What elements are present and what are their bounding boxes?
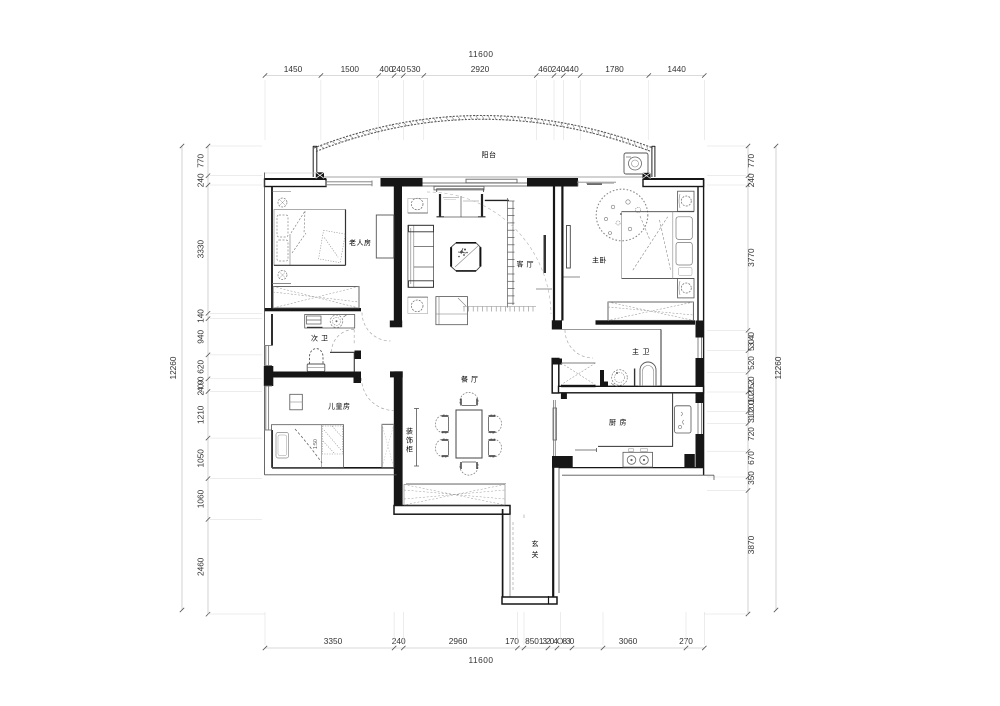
svg-text:850: 850 [525,636,539,646]
svg-text:460: 460 [538,64,552,74]
svg-text:720: 720 [746,427,756,441]
svg-text:1780: 1780 [605,64,624,74]
svg-text:12260: 12260 [773,356,783,379]
svg-text:240: 240 [552,64,566,74]
svg-text:13204O830: 13204O830 [539,636,575,646]
svg-text:柜: 柜 [406,445,414,454]
svg-text:1500: 1500 [341,64,360,74]
svg-text:670: 670 [746,451,756,465]
svg-text:24090: 24090 [196,376,206,395]
svg-text:餐厅: 餐厅 [461,375,481,384]
svg-text:2460: 2460 [196,557,206,576]
svg-text:350: 350 [746,471,756,485]
svg-text:620: 620 [196,359,206,373]
svg-text:1060: 1060 [196,489,206,508]
svg-text:1210: 1210 [196,405,206,424]
svg-text:3330: 3330 [196,239,206,258]
svg-text:1050: 1050 [196,449,206,468]
svg-text:关: 关 [532,550,540,559]
svg-text:主卫: 主卫 [632,347,653,356]
svg-text:240: 240 [746,173,756,187]
svg-text:厨房: 厨房 [609,418,630,427]
svg-text:53040: 53040 [746,332,756,351]
svg-text:阳台: 阳台 [482,150,497,159]
svg-text:儿童房: 儿童房 [328,402,351,411]
svg-text:310200: 310200 [746,400,756,423]
svg-text:1:50: 1:50 [313,439,319,449]
svg-text:530: 530 [407,64,421,74]
svg-text:240: 240 [196,173,206,187]
svg-text:140: 140 [196,309,206,323]
svg-text:770: 770 [746,153,756,167]
svg-text:1440: 1440 [667,64,686,74]
svg-text:3060: 3060 [619,636,638,646]
svg-text:2960: 2960 [449,636,468,646]
svg-text:240: 240 [392,64,406,74]
svg-text:520: 520 [746,356,756,370]
svg-text:440: 440 [565,64,579,74]
svg-text:940: 940 [196,329,206,343]
svg-text:1450: 1450 [284,64,303,74]
svg-text:3870: 3870 [746,535,756,554]
svg-text:1020520: 1020520 [746,376,756,403]
svg-text:3350: 3350 [324,636,343,646]
svg-text:3770: 3770 [746,248,756,267]
svg-text:11600: 11600 [469,49,494,59]
svg-text:2920: 2920 [471,64,490,74]
svg-text:770: 770 [196,153,206,167]
svg-text:饰: 饰 [406,436,414,445]
svg-text:老人房: 老人房 [349,238,372,247]
svg-text:客厅: 客厅 [517,260,537,269]
svg-text:次卫: 次卫 [311,334,331,343]
svg-text:12260: 12260 [168,356,178,379]
svg-text:11600: 11600 [469,655,494,665]
svg-text:主卧: 主卧 [592,256,607,265]
svg-text:玄: 玄 [532,539,540,548]
svg-text:装: 装 [406,427,414,436]
